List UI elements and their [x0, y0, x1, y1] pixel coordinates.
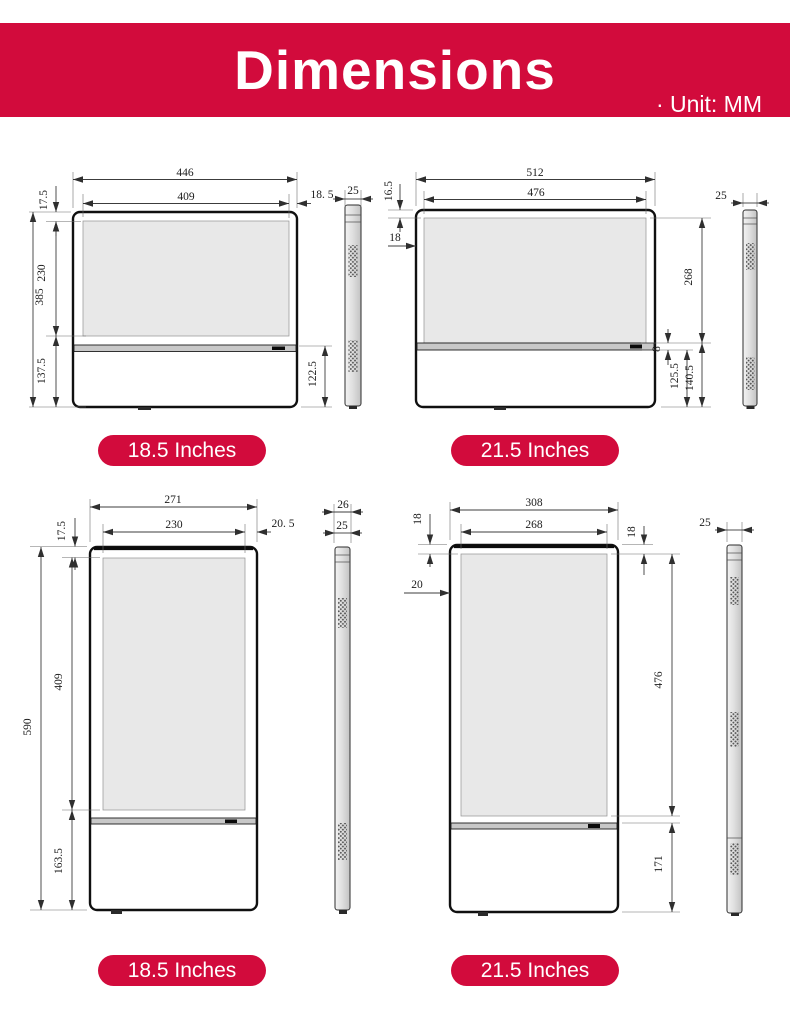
dim-label: 230: [165, 519, 183, 531]
dim-label: 230: [36, 264, 48, 282]
drawing-21-5-portrait: 308 268 18 18 20 476: [390, 480, 790, 945]
vent-grille: [338, 598, 347, 628]
vent-grille: [349, 340, 358, 372]
dim-screen-height: 476: [611, 554, 680, 816]
dim-depth: 25: [715, 190, 769, 207]
unit-label: · Unit: MM: [656, 91, 762, 118]
drawing-18-5-landscape: 446 409 18. 5 25 17.5: [20, 160, 390, 425]
dim-overall-width: 271: [90, 494, 257, 542]
dim-label: 409: [53, 673, 65, 691]
front-view-21-5-landscape: [416, 210, 655, 410]
screen-area: [83, 221, 289, 336]
dim-label: 163.5: [53, 848, 65, 874]
size-badge-top-left: 18.5 Inches: [98, 435, 266, 466]
dim-side-margin: 20. 5: [257, 518, 295, 532]
drawing-21-5-landscape: 512 476 16.5 18 268 8: [380, 160, 790, 425]
side-view-18-5-landscape: [345, 205, 361, 409]
ir-window: [588, 824, 600, 828]
dim-label: 17.5: [38, 190, 50, 210]
screen-area: [424, 218, 646, 343]
size-badge-top-right: 21.5 Inches: [451, 435, 619, 466]
dim-label: 476: [527, 187, 545, 199]
screen-area: [461, 554, 607, 816]
side-foot: [731, 913, 739, 916]
side-view-21-5-portrait: [727, 545, 742, 916]
dim-depth: 25: [333, 185, 373, 207]
dim-label: 140.5: [684, 365, 696, 391]
dim-label: 446: [176, 167, 194, 179]
dim-label: 20: [411, 579, 423, 591]
dim-side-margin: 18. 5: [297, 189, 334, 204]
size-badge-bottom-left: 18.5 Inches: [98, 955, 266, 986]
dim-label: 25: [699, 517, 711, 529]
side-foot: [339, 910, 347, 914]
dim-label: 268: [525, 519, 543, 531]
vent-grille: [730, 843, 739, 875]
vent-grille: [746, 243, 755, 270]
dim-label: 271: [164, 494, 182, 506]
dim-label: 17.5: [56, 521, 68, 541]
front-view-18-5-portrait: [90, 547, 257, 914]
side-foot: [349, 406, 357, 409]
ir-window: [225, 820, 237, 824]
divider-bar: [417, 343, 654, 350]
size-badge-bottom-right: 21.5 Inches: [451, 955, 619, 986]
front-view-18-5-landscape: [73, 212, 297, 410]
dim-top-margin-right: 18: [611, 526, 680, 575]
dim-label: 125.5: [669, 363, 681, 389]
dim-label: 25: [715, 190, 727, 202]
dimensions-sheet: Dimensions · Unit: MM 446: [0, 0, 790, 1022]
vent-grille: [746, 357, 755, 390]
vent-grille: [730, 577, 739, 605]
side-foot: [747, 406, 755, 409]
dim-label: 512: [526, 167, 544, 179]
dim-left-margin: 18: [388, 232, 416, 246]
dim-label: 122.5: [307, 361, 319, 387]
dim-label: 385: [34, 288, 46, 306]
vent-grille: [338, 823, 347, 860]
dim-label: 171: [653, 855, 665, 873]
dim-base-height: 171: [622, 823, 680, 912]
ir-window: [630, 345, 642, 349]
foot: [111, 910, 122, 914]
divider-bar: [74, 345, 296, 352]
dim-label: 16.5: [383, 181, 395, 201]
side-view-21-5-landscape: [743, 210, 757, 409]
foot: [478, 912, 488, 916]
foot: [138, 407, 151, 410]
page-title: Dimensions: [234, 38, 556, 102]
dim-base-height: 163.5: [53, 810, 72, 910]
dim-label: 308: [525, 497, 543, 509]
dim-depth: 25: [323, 520, 362, 533]
header-banner: Dimensions · Unit: MM: [0, 23, 790, 117]
side-profile: [345, 205, 361, 406]
dim-label: 8: [651, 346, 663, 352]
dim-label: 476: [653, 671, 665, 689]
dim-label: 18. 5: [311, 189, 334, 201]
vent-grille: [349, 245, 358, 277]
dim-label: 268: [683, 268, 695, 286]
dim-label: 18: [389, 232, 401, 244]
side-view-18-5-portrait: [335, 547, 350, 914]
dim-label: 18: [626, 526, 638, 538]
dim-left-margin: 20: [404, 579, 450, 593]
drawing-18-5-portrait: 271 230 20. 5 17.5 409 590: [10, 480, 380, 945]
dim-depth: 25: [699, 517, 754, 542]
dim-label: 137.5: [36, 358, 48, 384]
dim-label: 590: [22, 718, 34, 736]
dim-label: 409: [177, 191, 195, 203]
ir-window: [272, 347, 285, 351]
dim-label: 18: [412, 513, 424, 525]
dim-label: 25: [347, 185, 359, 197]
screen-area: [103, 558, 245, 810]
dim-label: 20. 5: [272, 518, 295, 530]
vent-grille: [730, 712, 739, 747]
dim-base-right-height: 122.5: [299, 346, 332, 407]
front-view-21-5-portrait: [450, 545, 618, 916]
foot: [494, 407, 506, 410]
dim-label: 26: [337, 499, 349, 511]
dim-label: 25: [336, 520, 348, 532]
